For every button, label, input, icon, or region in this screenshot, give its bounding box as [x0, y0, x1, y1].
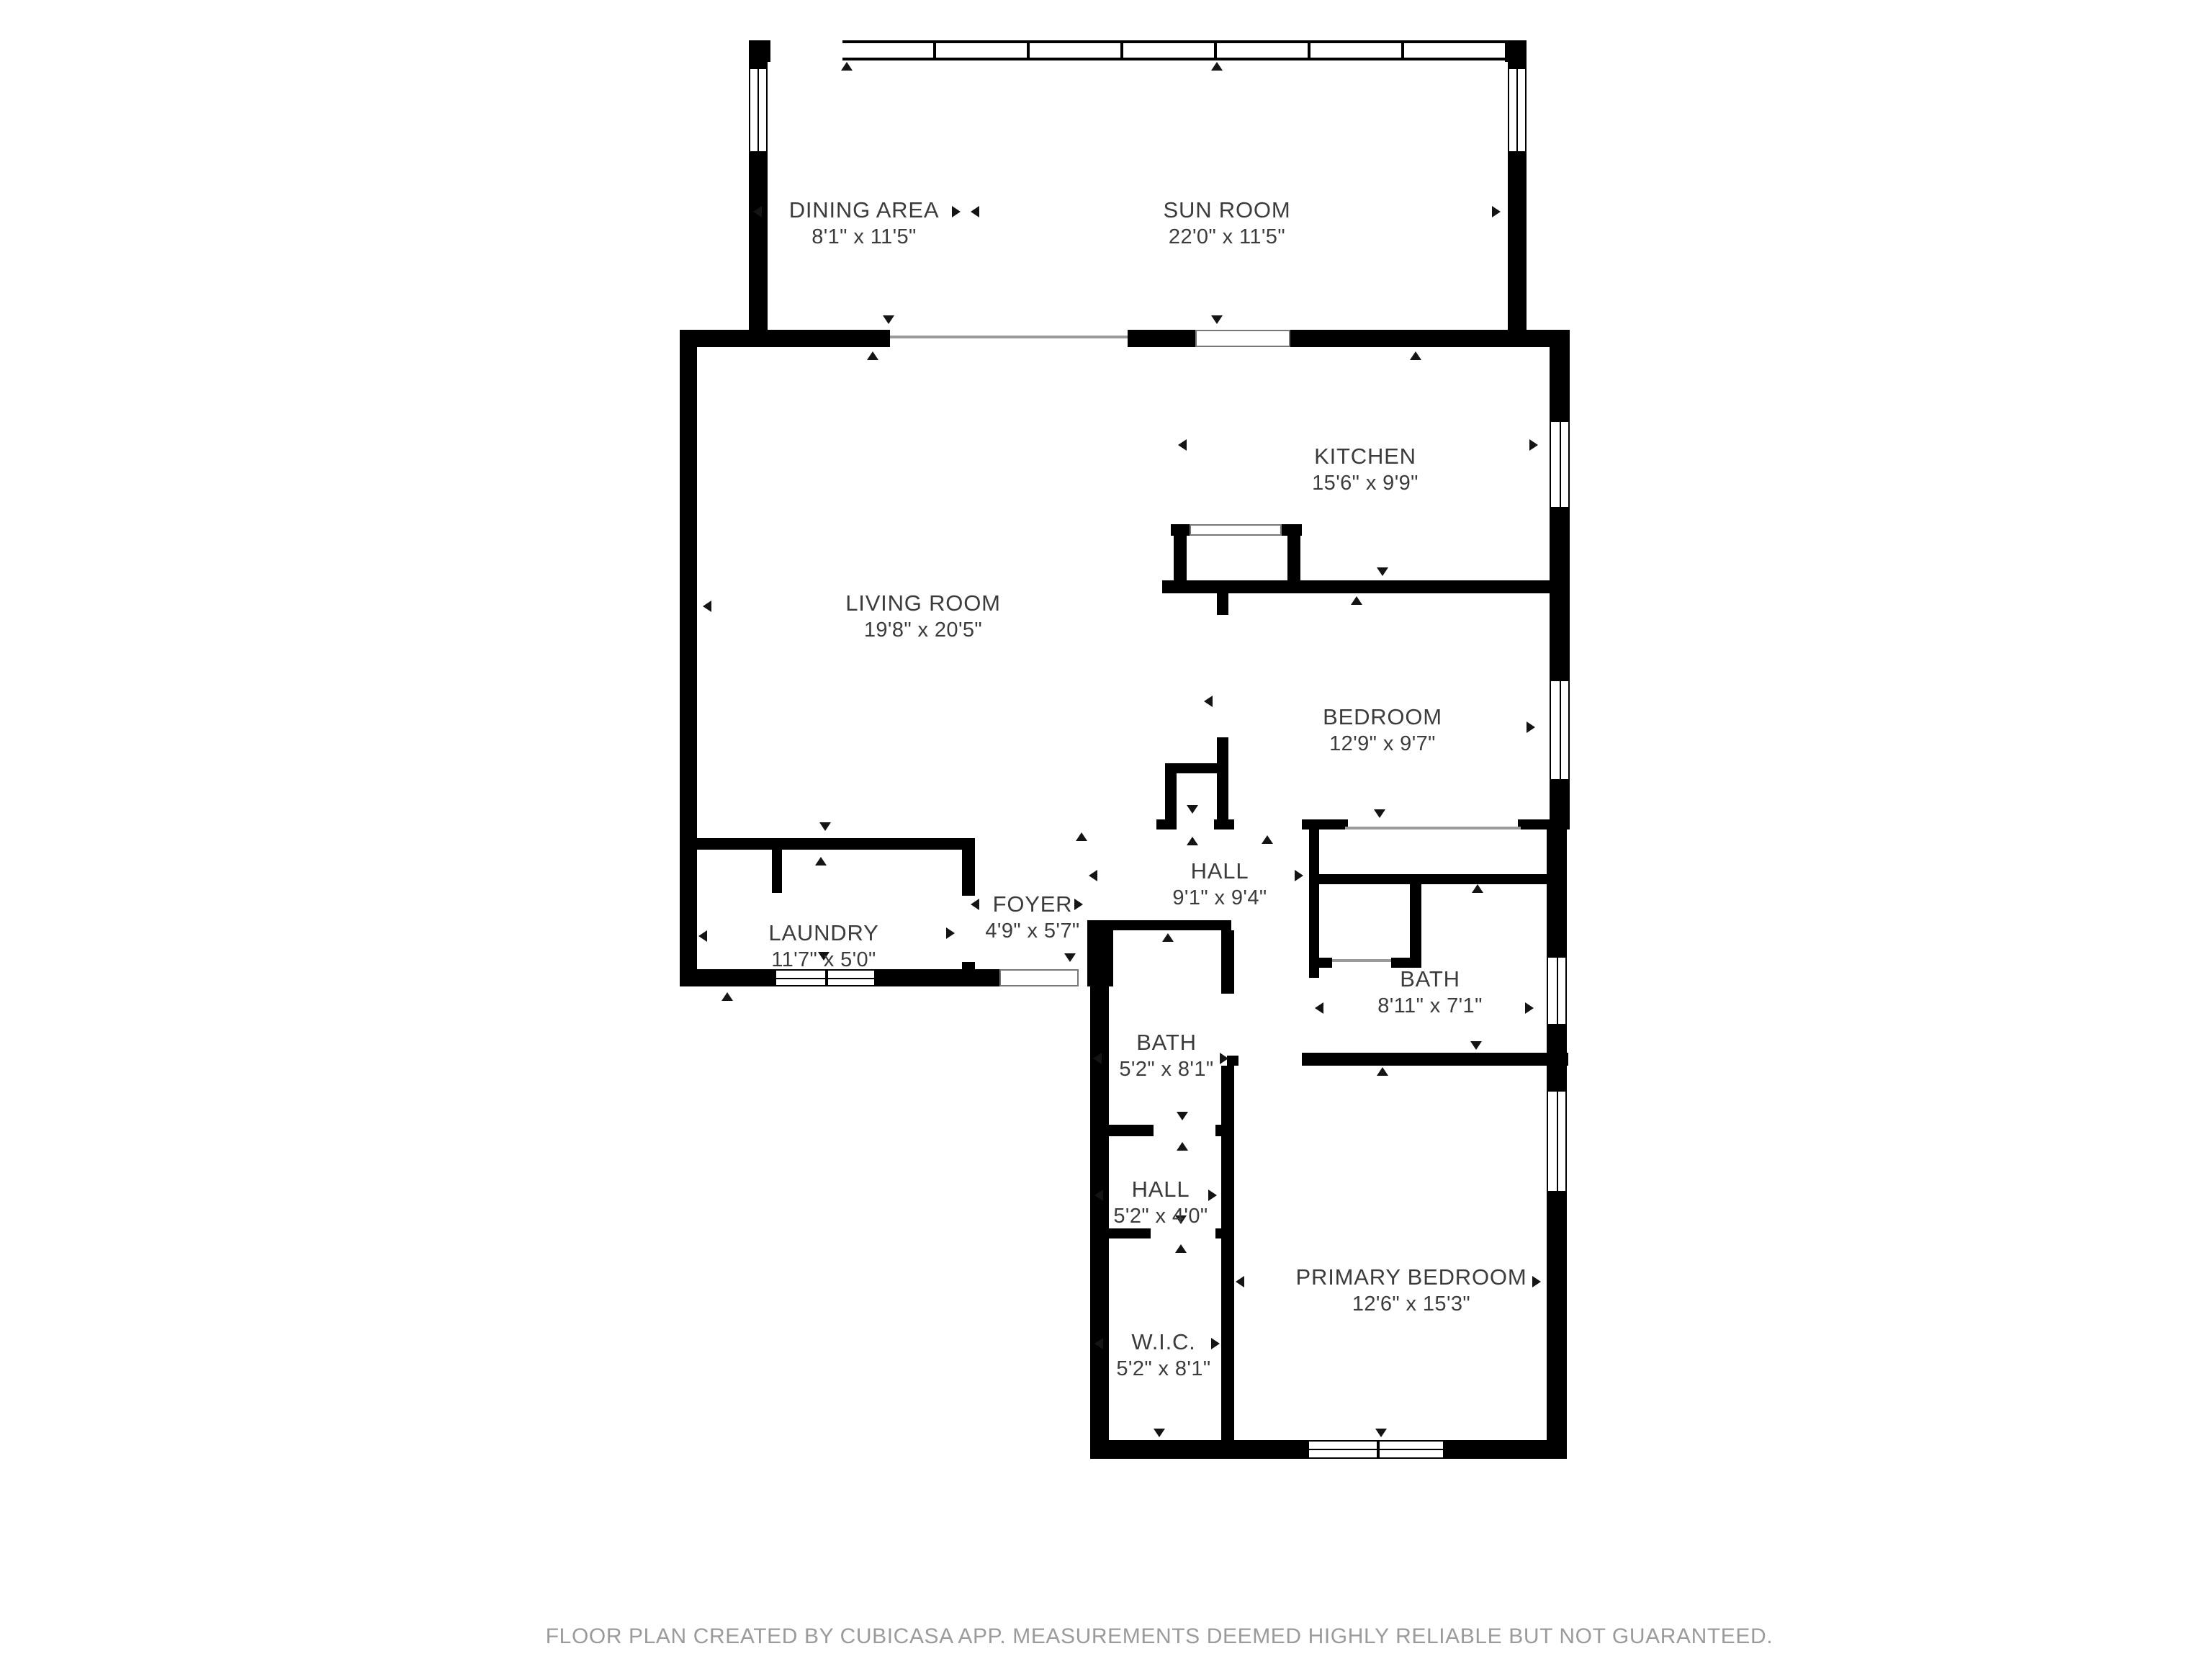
wall-segment	[1290, 330, 1570, 347]
room-dimensions: 5'2" x 8'1"	[1119, 1057, 1213, 1083]
opening-marker-icon	[1470, 1041, 1482, 1050]
wall-segment	[1550, 347, 1570, 421]
wall-segment	[1165, 763, 1226, 773]
extent-marker-icon	[952, 206, 961, 217]
window	[1308, 1440, 1444, 1459]
room-label-hall-2: HALL 5'2" x 4'0"	[1113, 1178, 1208, 1230]
wall-segment	[1165, 773, 1177, 819]
wall-segment	[749, 153, 768, 336]
footer-disclaimer: FLOOR PLAN CREATED BY CUBICASA APP. MEAS…	[108, 1624, 2211, 1649]
wall-segment	[680, 347, 697, 986]
room-name: PRIMARY BEDROOM	[1296, 1266, 1527, 1292]
wall-segment	[1217, 737, 1228, 819]
extent-marker-icon	[971, 206, 979, 217]
room-name: FOYER	[985, 893, 1079, 919]
extent-marker-icon	[1529, 439, 1538, 451]
window	[1547, 956, 1567, 1025]
opening-marker-icon	[1410, 351, 1421, 360]
open-passage-line	[890, 336, 1128, 338]
extent-marker-icon	[1089, 870, 1097, 881]
wall-segment	[1505, 40, 1527, 62]
opening-marker-icon	[1211, 315, 1223, 324]
room-label-hall: HALL 9'1" x 9'4"	[1172, 860, 1267, 912]
room-label-kitchen: KITCHEN 15'6" x 9'9"	[1312, 445, 1419, 497]
room-dimensions: 22'0" x 11'5"	[1164, 225, 1291, 251]
room-dimensions: 19'8" x 20'5"	[845, 618, 1001, 644]
extent-marker-icon	[1532, 1276, 1541, 1287]
room-label-primary-bedroom: PRIMARY BEDROOM 12'6" x 15'3"	[1296, 1266, 1527, 1318]
wall-segment	[1318, 874, 1550, 884]
room-name: LIVING ROOM	[845, 592, 1001, 618]
opening-marker-icon	[1377, 1067, 1388, 1076]
open-passage-line	[1332, 959, 1391, 962]
room-name: SUN ROOM	[1164, 199, 1291, 225]
opening-marker-icon	[1351, 596, 1362, 605]
room-name: KITCHEN	[1312, 445, 1419, 471]
extent-marker-icon	[1208, 1190, 1217, 1201]
room-label-wic: W.I.C. 5'2" x 8'1"	[1116, 1331, 1210, 1382]
opening-marker-icon	[867, 351, 878, 360]
room-label-living-room: LIVING ROOM 19'8" x 20'5"	[845, 592, 1001, 644]
window	[1508, 68, 1527, 153]
wall-segment	[1174, 536, 1187, 580]
room-dimensions: 8'11" x 7'1"	[1377, 994, 1483, 1020]
room-dimensions: 12'6" x 15'3"	[1296, 1292, 1527, 1318]
extent-marker-icon	[1492, 206, 1501, 217]
wall-segment	[1309, 829, 1319, 978]
opening-marker-icon	[1204, 696, 1213, 707]
opening-marker-icon	[1175, 1244, 1187, 1253]
extent-marker-icon	[1094, 1338, 1103, 1349]
door	[1195, 330, 1290, 347]
wall-segment	[1090, 1125, 1154, 1136]
wall-segment	[1214, 819, 1234, 829]
wall-segment	[1547, 829, 1567, 956]
opening-marker-icon	[1472, 884, 1483, 893]
wall-segment	[1287, 536, 1300, 580]
opening-marker-icon	[1154, 1429, 1165, 1437]
wall-segment	[1128, 330, 1195, 347]
opening-marker-icon	[1375, 1429, 1387, 1437]
room-label-bath-2: BATH 5'2" x 8'1"	[1119, 1031, 1213, 1083]
opening-marker-icon	[815, 857, 827, 866]
opening-marker-icon	[1076, 832, 1087, 841]
wall-segment	[1550, 507, 1570, 680]
extent-marker-icon	[703, 601, 711, 612]
wall-segment	[680, 969, 775, 986]
room-name: DINING AREA	[789, 199, 940, 225]
wall-segment	[1215, 1125, 1234, 1136]
open-passage-line	[1345, 827, 1521, 829]
wall-segment	[772, 850, 782, 893]
wall-segment	[680, 838, 974, 850]
wall-segment	[1217, 593, 1228, 615]
wall-segment	[1309, 958, 1332, 968]
extent-marker-icon	[1093, 1053, 1102, 1064]
extent-marker-icon	[971, 899, 979, 910]
extent-marker-icon	[698, 930, 707, 942]
window	[749, 68, 768, 153]
extent-marker-icon	[1178, 439, 1187, 451]
wall-segment	[1227, 1056, 1238, 1066]
room-name: BATH	[1119, 1031, 1213, 1057]
room-dimensions: 15'6" x 9'9"	[1312, 471, 1419, 497]
wall-segment	[749, 40, 770, 62]
room-dimensions: 5'2" x 8'1"	[1116, 1357, 1210, 1382]
room-name: HALL	[1113, 1178, 1208, 1204]
opening-marker-icon	[1377, 567, 1388, 576]
window	[1550, 680, 1570, 781]
entry-door	[999, 969, 1079, 986]
room-name: W.I.C.	[1116, 1331, 1210, 1357]
room-label-dining-area: DINING AREA 8'1" x 11'5"	[789, 199, 940, 251]
opening-marker-icon	[1064, 953, 1076, 962]
opening-marker-icon	[1177, 1112, 1188, 1120]
opening-marker-icon	[1177, 1142, 1188, 1151]
wall-segment	[1221, 1066, 1234, 1440]
extent-marker-icon	[1295, 870, 1303, 881]
wall-segment	[1090, 1440, 1308, 1459]
opening-marker-icon	[1262, 835, 1273, 844]
opening-marker-icon	[946, 927, 955, 939]
opening-marker-icon	[819, 822, 831, 831]
room-dimensions: 8'1" x 11'5"	[789, 225, 940, 251]
opening-marker-icon	[1211, 62, 1223, 71]
extent-marker-icon	[1236, 1276, 1244, 1287]
wall-segment	[1162, 580, 1570, 593]
room-name: HALL	[1172, 860, 1267, 886]
room-label-laundry: LAUNDRY 11'7" x 5'0"	[768, 922, 878, 974]
room-name: BEDROOM	[1323, 706, 1442, 732]
opening-marker-icon	[1374, 809, 1385, 818]
opening-marker-icon	[1315, 1002, 1323, 1014]
wall-segment	[1444, 1440, 1567, 1459]
room-label-foyer: FOYER 4'9" x 5'7"	[985, 893, 1079, 945]
extent-marker-icon	[753, 206, 762, 217]
window	[1550, 421, 1570, 510]
room-dimensions: 11'7" x 5'0"	[768, 948, 878, 974]
wall-segment	[1302, 1053, 1568, 1066]
wall-segment	[962, 838, 975, 896]
room-dimensions: 9'1" x 9'4"	[1172, 886, 1267, 912]
room-label-bath: BATH 8'11" x 7'1"	[1377, 968, 1483, 1020]
room-label-bedroom: BEDROOM 12'9" x 9'7"	[1323, 706, 1442, 757]
floor-plan-page: DINING AREA 8'1" x 11'5" SUN ROOM 22'0" …	[0, 0, 2212, 1659]
wall-segment	[1156, 819, 1177, 829]
wall-segment	[876, 969, 999, 986]
room-dimensions: 4'9" x 5'7"	[985, 919, 1079, 945]
wall-segment	[680, 330, 890, 347]
extent-marker-icon	[1220, 1053, 1228, 1064]
opening-marker-icon	[1162, 933, 1174, 942]
room-name: BATH	[1377, 968, 1483, 994]
extent-marker-icon	[1211, 1338, 1220, 1349]
opening-marker-icon	[883, 315, 894, 324]
opening-marker-icon	[721, 992, 733, 1001]
wall-segment	[1550, 781, 1570, 829]
extent-marker-icon	[1525, 1002, 1534, 1014]
wall-segment	[1410, 884, 1421, 968]
opening-marker-icon	[1187, 805, 1198, 814]
room-dimensions: 12'9" x 9'7"	[1323, 732, 1442, 757]
window	[1547, 1090, 1567, 1192]
wall-segment	[1282, 524, 1302, 536]
wall-segment	[1215, 1228, 1234, 1238]
room-name: LAUNDRY	[768, 922, 878, 948]
window	[842, 40, 1505, 60]
room-dimensions: 5'2" x 4'0"	[1113, 1204, 1208, 1230]
wall-segment	[1090, 1228, 1151, 1238]
wall-segment	[1518, 819, 1550, 829]
opening-marker-icon	[841, 62, 853, 71]
closet-door	[1190, 524, 1282, 536]
wall-segment	[1391, 958, 1421, 968]
opening-marker-icon	[1187, 837, 1198, 845]
wall-segment	[1302, 819, 1348, 829]
wall-segment	[1508, 153, 1527, 336]
wall-segment	[1547, 1192, 1567, 1459]
wall-segment	[1171, 524, 1190, 536]
wall-segment	[1090, 920, 1231, 930]
extent-marker-icon	[1527, 721, 1535, 733]
extent-marker-icon	[1094, 1190, 1103, 1201]
wall-segment	[1221, 930, 1234, 994]
room-label-sun-room: SUN ROOM 22'0" x 11'5"	[1164, 199, 1291, 251]
